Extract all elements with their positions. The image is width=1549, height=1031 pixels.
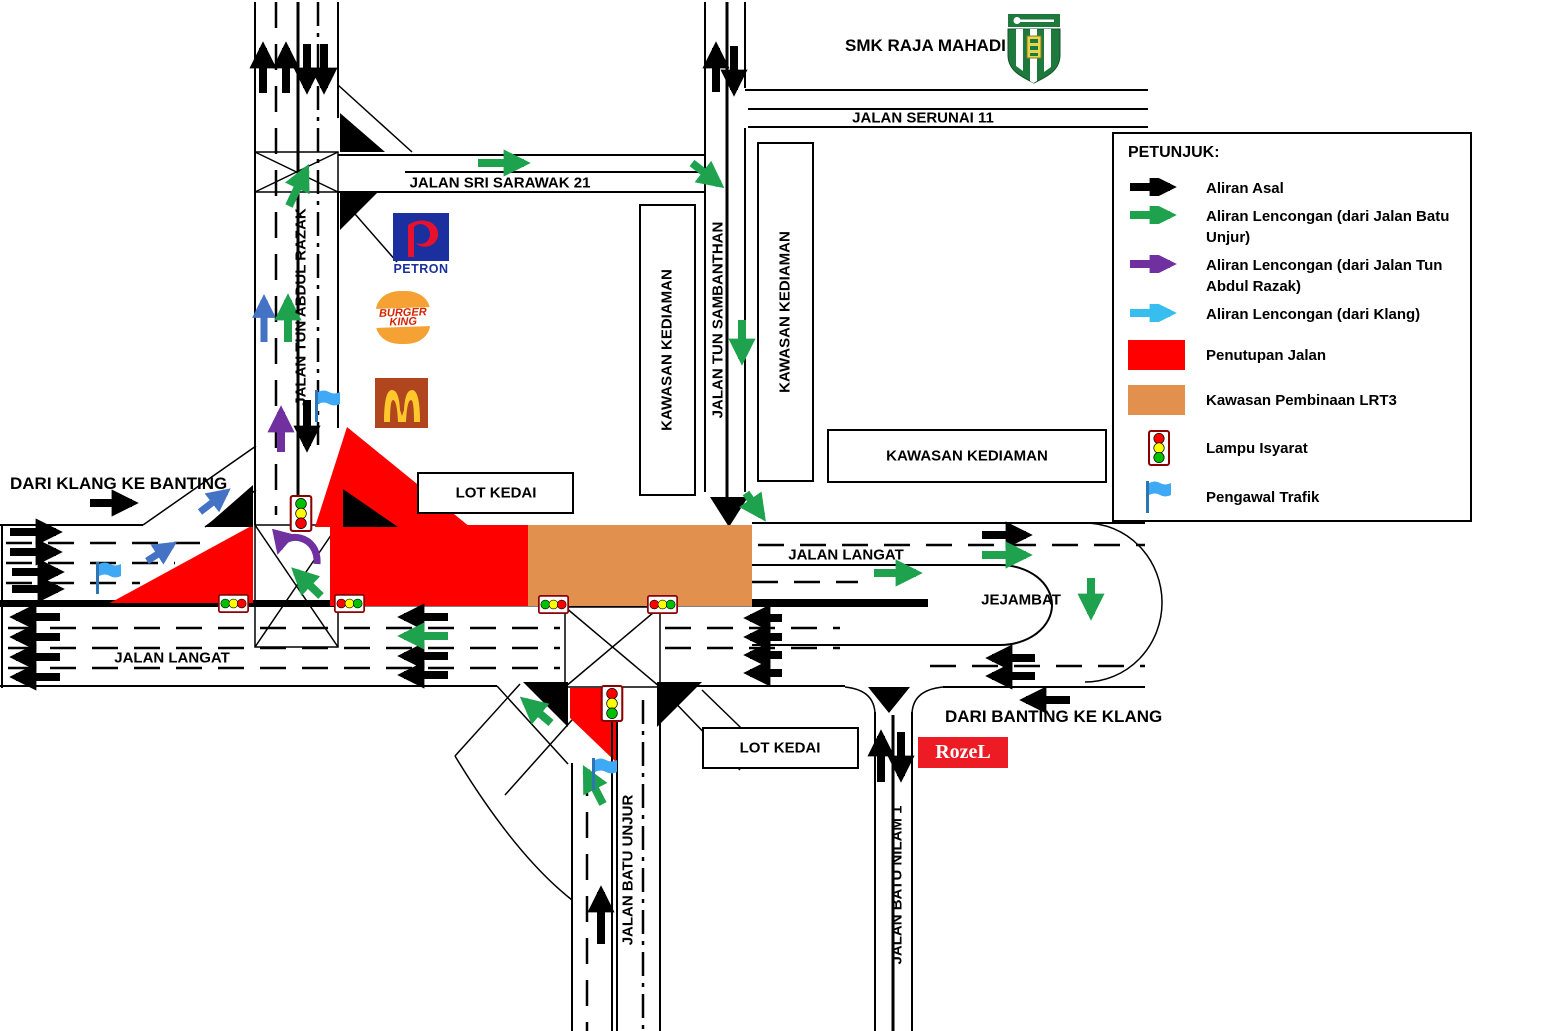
jejambat-divider-bar	[752, 599, 928, 607]
label-jalan-serunai: JALAN SERUNAI 11	[852, 110, 994, 127]
junction-box-razak-langat	[255, 525, 338, 647]
mcdonalds-logo	[375, 378, 428, 428]
island-sambanthan-south	[710, 497, 748, 527]
mcdonalds-arches-icon	[381, 384, 423, 422]
legend-item-lampu-isyarat: Lampu Isyarat	[1128, 430, 1456, 466]
label-dari-banting: DARI BANTING KE KLANG	[945, 707, 1162, 727]
jejambat-outer-ramp	[1085, 523, 1162, 682]
legend-item-lencongan-batu-unjur: Aliran Lencongan (dari Jalan Batu Unjur)	[1128, 206, 1456, 248]
label-jalan-tun-sambanthan: JALAN TUN SAMBANTHAN	[710, 222, 727, 419]
traffic-warden-flag-1	[96, 562, 121, 594]
traffic-diversion-map: SMK RAJA MAHADI JALAN SERUNAI 11 JALAN S…	[0, 0, 1549, 1031]
legend-item-pengawal-trafik: Pengawal Trafik	[1128, 481, 1456, 513]
island-batu-unjur-east	[657, 682, 702, 727]
lrt3-construction-zone	[528, 525, 752, 606]
legend-title: PETUNJUK:	[1128, 144, 1456, 162]
purple-uturn-arrow	[279, 537, 317, 564]
label-kawasan-kediaman-1: KAWASAN KEDIAMAN	[659, 269, 676, 431]
legend-panel: PETUNJUK: Aliran Asal Aliran Lencongan (…	[1112, 132, 1472, 522]
petron-icon	[393, 213, 449, 261]
legend-item-aliran-asal: Aliran Asal	[1128, 178, 1456, 199]
label-jalan-langat-1: JALAN LANGAT	[114, 650, 230, 667]
label-jalan-tun-abdul-razak: JALAN TUN ABDUL RAZAK	[293, 208, 310, 406]
traffic-light-langat-1	[219, 595, 248, 612]
legend-item-lencongan-tun-abdul-razak: Aliran Lencongan (dari Jalan Tun Abdul R…	[1128, 255, 1456, 297]
traffic-light-langat-3	[539, 596, 568, 613]
legend-item-penutupan-jalan: Penutupan Jalan	[1128, 340, 1456, 370]
legend-item-kawasan-lrt3: Kawasan Pembinaan LRT3	[1128, 385, 1456, 415]
label-kawasan-kediaman-2: KAWASAN KEDIAMAN	[777, 231, 794, 393]
label-jalan-batu-unjur: JALAN BATU UNJUR	[620, 795, 637, 946]
petron-wordmark: PETRON	[392, 262, 450, 276]
label-dari-klang: DARI KLANG KE BANTING	[10, 474, 227, 494]
traffic-warden-flag-2	[315, 390, 340, 422]
black-arrow-icon	[1128, 178, 1190, 196]
traffic-light-icon	[1128, 430, 1190, 466]
rozel-logo: RozeL	[918, 737, 1008, 768]
label-lot-kedai-2: LOT KEDAI	[740, 740, 821, 757]
closure-zone-langat-west	[110, 525, 253, 603]
green-arrow-icon	[1128, 206, 1190, 224]
label-jalan-langat-2: JALAN LANGAT	[788, 547, 904, 564]
label-lot-kedai-1: LOT KEDAI	[456, 485, 537, 502]
traffic-light-batu-unjur	[602, 686, 623, 721]
legend-item-lencongan-klang: Aliran Lencongan (dari Klang)	[1128, 304, 1456, 325]
label-jalan-batu-nilam: JALAN BATU NILAM 1	[889, 806, 906, 965]
petron-logo: PETRON	[392, 213, 450, 276]
road-closure-swatch	[1128, 340, 1185, 370]
label-jalan-sri-sarawak: JALAN SRI SARAWAK 21	[410, 175, 591, 192]
blue-arrow-icon	[1128, 304, 1190, 322]
lrt3-construction-swatch	[1128, 385, 1185, 415]
island-sarawak-south	[340, 192, 378, 230]
island-sarawak-north	[340, 113, 385, 152]
label-kawasan-kediaman-3: KAWASAN KEDIAMAN	[886, 448, 1048, 465]
traffic-light-langat-4	[648, 596, 677, 613]
traffic-light-langat-2	[335, 595, 364, 612]
road-jalan-batu-unjur	[455, 607, 772, 1031]
purple-arrow-icon	[1128, 255, 1190, 273]
flag-icon	[1128, 481, 1190, 513]
traffic-light-razak	[291, 496, 312, 531]
burger-king-logo: BURGER KING	[376, 291, 430, 344]
school-badge-icon	[1003, 12, 1065, 91]
burger-king-wordmark: BURGER KING	[374, 307, 433, 328]
label-smk-raja-mahadi: SMK RAJA MAHADI	[845, 36, 1006, 56]
closure-zone-langat-east	[330, 525, 528, 606]
label-jejambat: JEJAMBAT	[981, 592, 1061, 609]
